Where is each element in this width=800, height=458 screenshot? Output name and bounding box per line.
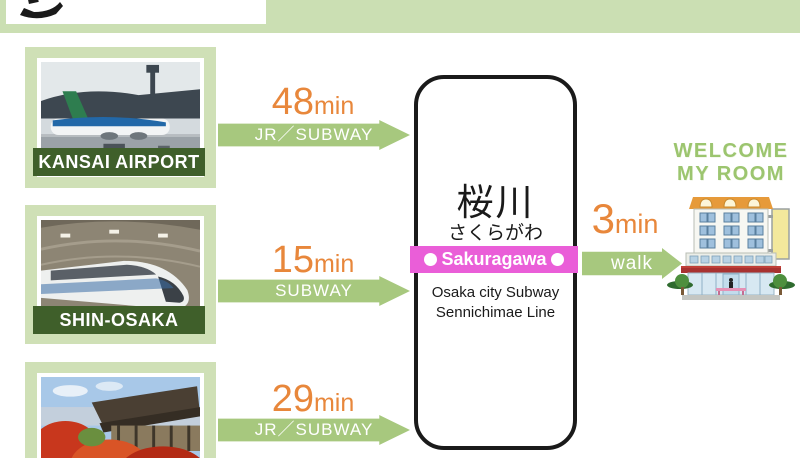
origin-card-kansai-airport: KANSAI AIRPORT (25, 47, 216, 188)
transport-mode: JR／SUBWAY (255, 420, 374, 439)
station-line-banner: Sakuragawa (410, 246, 578, 273)
track-dot-icon (424, 253, 437, 266)
access-map: Access to my place KANSAI AIRPORT (0, 0, 800, 458)
origin-label-shin-osaka: SHIN-OSAKA (33, 306, 205, 334)
origin-card-shin-osaka: SHIN-OSAKA (25, 205, 216, 344)
walk-time: 3min (582, 198, 668, 250)
subway-line-name: Osaka city Subway Sennichimae Line (414, 283, 577, 323)
photo-frame (37, 373, 204, 458)
station-name-romaji: Sakuragawa (441, 249, 546, 269)
route-arrow-kyoto: JR／SUBWAY (218, 415, 410, 445)
origin-card-kyoto (25, 362, 216, 458)
route-arrow-kansai: JR／SUBWAY (218, 120, 410, 150)
route-arrow-shin-osaka: SUBWAY (218, 276, 410, 306)
walk-mode: walk (611, 253, 653, 274)
station-name-kana: さくらがわ (414, 218, 577, 245)
hotel-building-illustration (666, 193, 796, 311)
welcome-my-room-text: WELCOME MY ROOM (666, 140, 796, 186)
transport-mode: JR／SUBWAY (255, 125, 374, 144)
origin-label-kansai-airport: KANSAI AIRPORT (33, 148, 205, 176)
kyoto-temple-photo (41, 377, 200, 458)
pointer-icon (18, 0, 64, 22)
track-dot-icon (551, 253, 564, 266)
title-box: Access to my place (6, 0, 266, 24)
transport-mode: SUBWAY (275, 281, 353, 300)
